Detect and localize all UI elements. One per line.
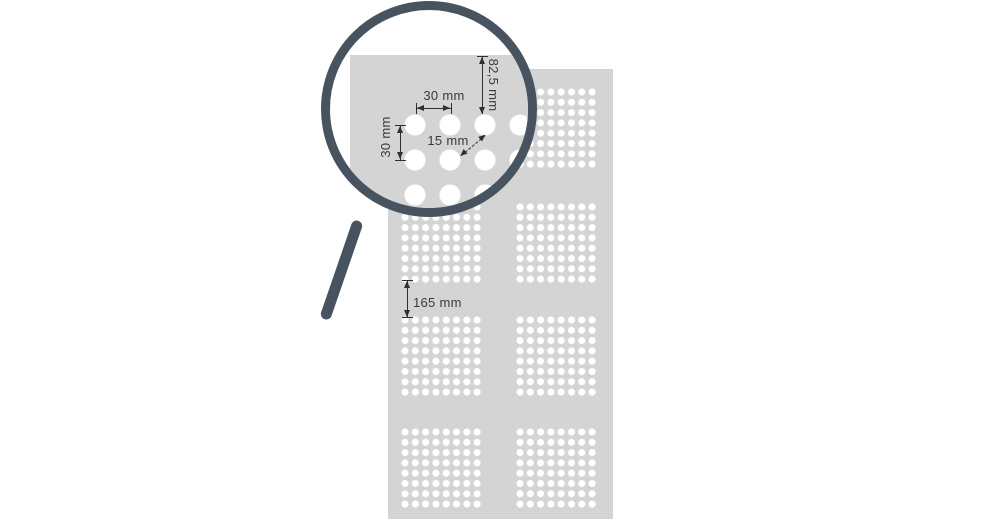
magnifier-lens: 30 mm 30 mm 82,5 mm [321, 1, 537, 217]
hole-cluster [515, 427, 596, 508]
arrowhead-down-icon [404, 310, 410, 317]
arrowhead-left-icon [417, 105, 424, 111]
hole-cluster [515, 315, 596, 396]
dimension-label-cluster-gap: 165 mm [413, 296, 462, 310]
dimension-label-top-margin: 82,5 mm [486, 50, 500, 120]
arrowhead-down-icon [479, 107, 485, 114]
arrowhead-up-icon [479, 57, 485, 64]
arrowhead-right-icon [443, 105, 450, 111]
dimension-tick [451, 103, 452, 114]
dimension-tick [395, 160, 406, 161]
dimension-label-spacing-horizontal: 30 mm [410, 89, 478, 103]
magnifier-handle [319, 219, 363, 321]
hole-cluster [515, 202, 596, 283]
dimension-line [482, 57, 483, 114]
diagram-canvas: 165 mm 30 mm 30 mm [0, 0, 1000, 532]
arrowhead-down-icon [397, 152, 403, 159]
arrowhead-up-icon [404, 281, 410, 288]
hole-cluster [400, 315, 481, 396]
dimension-label-spacing-vertical: 30 mm [379, 105, 393, 169]
arrowhead-up-icon [397, 126, 403, 133]
dimension-tick [402, 317, 413, 318]
hole-cluster [400, 427, 481, 508]
